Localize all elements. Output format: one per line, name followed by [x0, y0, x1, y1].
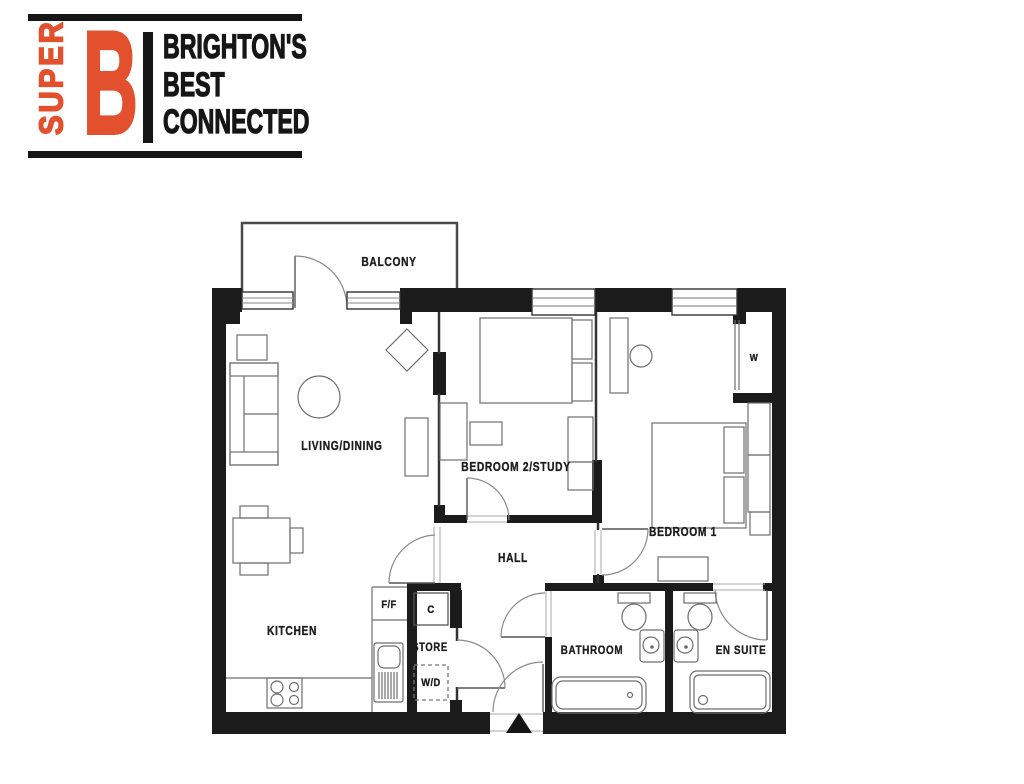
bathroom-door	[501, 593, 545, 637]
outer-walls	[212, 288, 786, 734]
room-label-bathroom: BATHROOM	[561, 644, 623, 657]
fixture-label-wardrobe: W	[750, 352, 758, 363]
entrance-door	[493, 662, 543, 712]
kitchen-fixtures	[226, 587, 407, 712]
bedroom2-window	[532, 289, 595, 315]
bedroom1-door	[602, 529, 648, 575]
room-label-ensuite: EN SUITE	[716, 644, 767, 657]
room-label-balcony: BALCONY	[361, 256, 416, 269]
entrance-marker-icon	[506, 713, 532, 733]
floorplan-page: { "logo": { "vertical_text": "SUPER", "b…	[0, 0, 1024, 784]
living-room-window	[242, 292, 400, 309]
bedroom1-window	[672, 289, 737, 315]
hall-door	[389, 535, 435, 583]
store-door	[457, 640, 505, 688]
fixture-label-cupboard: C	[427, 604, 434, 616]
fixture-label-fridge-freezer: F/F	[381, 599, 396, 611]
room-label-living-dining: LIVING/DINING	[301, 440, 382, 453]
bedroom2-door	[467, 478, 509, 520]
floor-plan: BALCONY LIVING/DINING BEDROOM 2/STUDY BE…	[0, 0, 1024, 784]
fixture-label-washer-dryer: W/D	[421, 677, 440, 689]
balcony-outline	[242, 223, 457, 292]
room-label-bedroom1: BEDROOM 1	[649, 526, 717, 539]
thin-walls	[439, 312, 598, 700]
balcony-door	[295, 256, 347, 308]
bedroom1-furniture	[610, 318, 770, 581]
room-label-hall: HALL	[498, 552, 528, 565]
ensuite-door	[715, 590, 767, 640]
room-label-kitchen: KITCHEN	[267, 625, 317, 638]
room-label-store: STORE	[412, 641, 448, 654]
opening-jambs	[434, 516, 765, 731]
room-labels: BALCONY LIVING/DINING BEDROOM 2/STUDY BE…	[267, 256, 766, 689]
room-label-bedroom2: BEDROOM 2/STUDY	[461, 461, 570, 474]
